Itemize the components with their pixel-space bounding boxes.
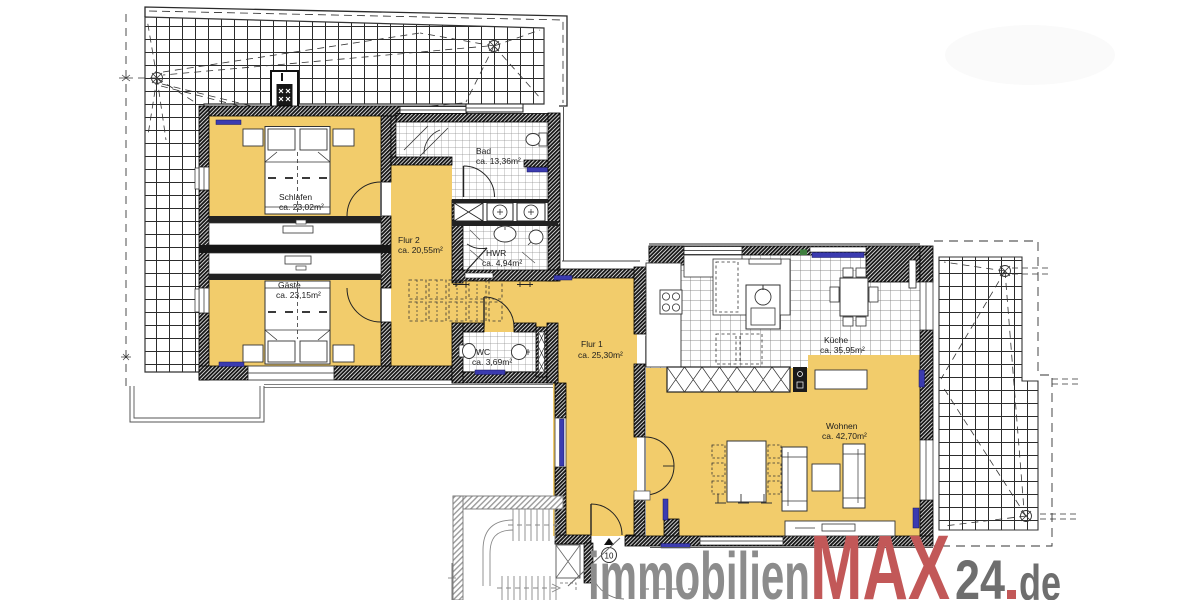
- svg-text:HWR: HWR: [486, 248, 506, 258]
- svg-text:Bad: Bad: [476, 146, 491, 156]
- svg-text:Flur 2: Flur 2: [398, 235, 420, 245]
- svg-text:MAX: MAX: [810, 517, 950, 600]
- svg-text:WC: WC: [476, 347, 490, 357]
- svg-text:ca. 23,02m²: ca. 23,02m²: [279, 202, 324, 212]
- svg-text:24: 24: [955, 548, 1005, 600]
- svg-text:ca. 23,15m²: ca. 23,15m²: [276, 290, 321, 300]
- svg-text:ca. 20,55m²: ca. 20,55m²: [398, 245, 443, 255]
- svg-text:ca. 42,70m²: ca. 42,70m²: [822, 431, 867, 441]
- svg-text:Flur 1: Flur 1: [581, 339, 603, 349]
- svg-text:immobilien: immobilien: [588, 539, 810, 600]
- svg-text:Wohnen: Wohnen: [826, 421, 858, 431]
- svg-text:ca. 4,94m²: ca. 4,94m²: [482, 258, 522, 268]
- svg-text:de: de: [1019, 555, 1061, 600]
- svg-text:Küche: Küche: [824, 335, 848, 345]
- svg-text:Gäste: Gäste: [278, 280, 301, 290]
- svg-text:ca. 35,95m²: ca. 35,95m²: [820, 345, 865, 355]
- svg-text:ca. 13,36m²: ca. 13,36m²: [476, 156, 521, 166]
- svg-text:Schlafen: Schlafen: [279, 192, 312, 202]
- svg-text:ca. 25,30m²: ca. 25,30m²: [578, 350, 623, 360]
- svg-text:ca. 3,69m²: ca. 3,69m²: [472, 357, 512, 367]
